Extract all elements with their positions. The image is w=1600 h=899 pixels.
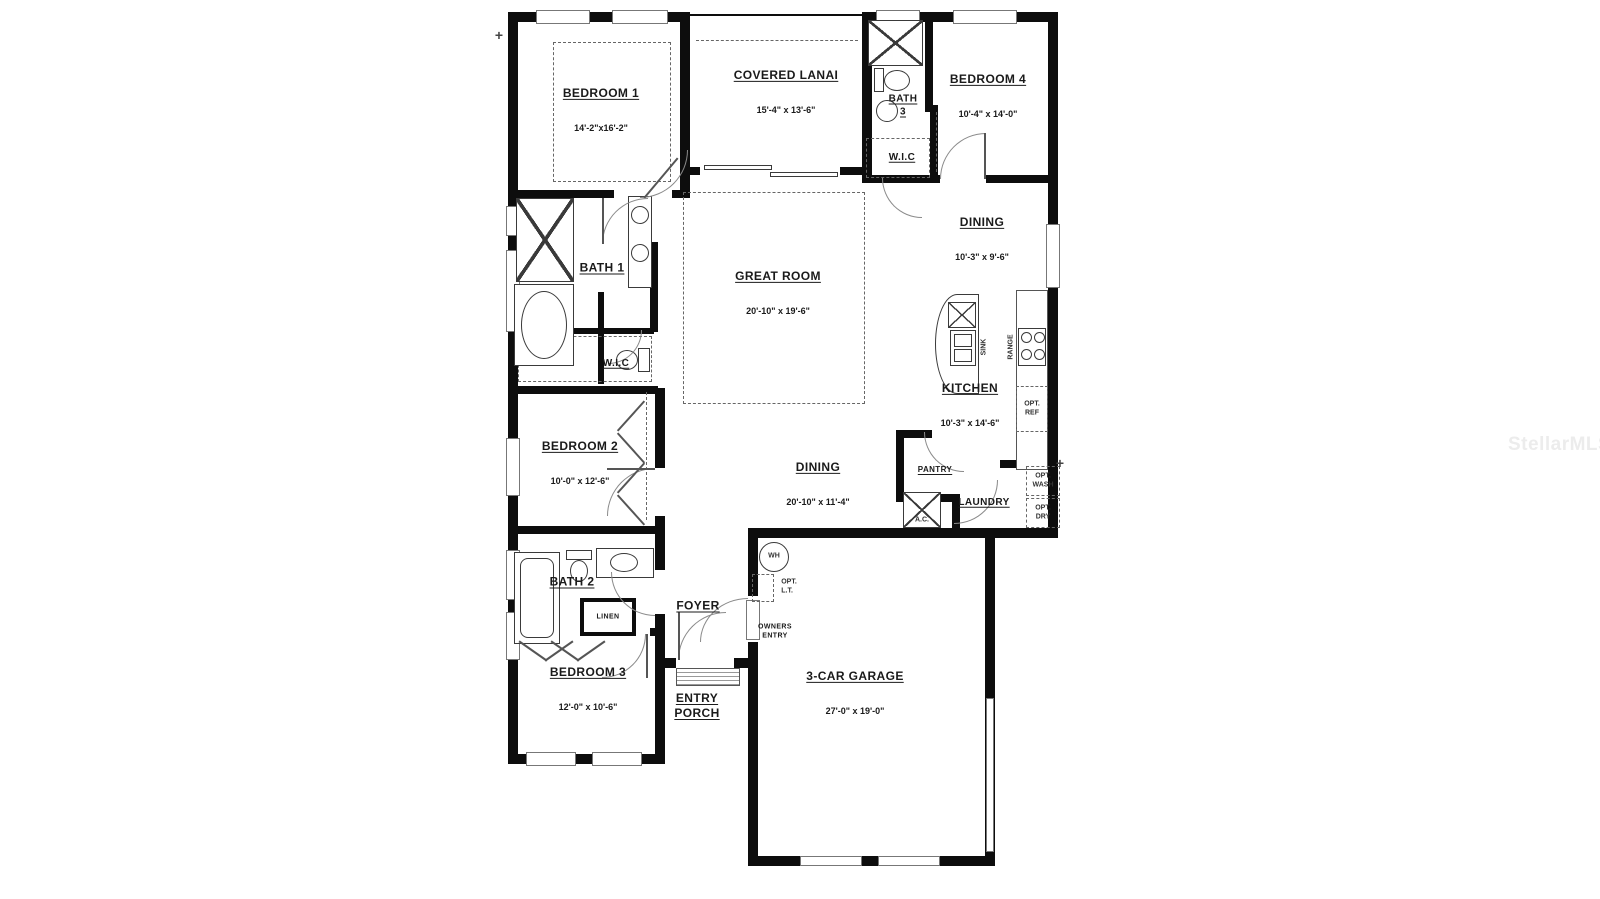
kitchen-counter-right: [1016, 290, 1048, 470]
wall-bath3-right: [925, 12, 933, 112]
window-bedroom4-top: [953, 10, 1017, 24]
slider-panel-1: [704, 165, 772, 170]
opt-laundry-tub-box: [752, 574, 774, 602]
linen-name: LINEN: [597, 614, 620, 623]
sink-label: SINK: [981, 339, 990, 356]
room-label-entry-porch: ENTRY PORCH: [674, 671, 719, 741]
garage-door-opening-1: [800, 856, 862, 866]
range-label: RANGE: [1008, 334, 1017, 359]
window-bedroom1-top-2: [612, 10, 668, 24]
dining-upper-name: DINING: [955, 215, 1009, 230]
bedroom1-name: BEDROOM 1: [563, 86, 639, 101]
kitchen-dims: 10'-3" x 14'-6": [941, 418, 1000, 429]
covered-lanai-name: COVERED LANAI: [734, 68, 839, 83]
bedroom2-bifold-2: [617, 432, 645, 463]
dining-center-dims: 20'-10" x 11'-4": [786, 497, 849, 508]
pantry-name: PANTRY: [918, 465, 952, 475]
bedroom2-bifold-1: [617, 400, 645, 431]
opt-dry-label: OPT. DRY: [1035, 504, 1051, 522]
wall-bedroom2-top: [508, 386, 658, 394]
opening-bedroom2-door: [655, 468, 665, 516]
garage-dims: 27'-0" x 19'-0": [806, 706, 903, 717]
bedroom4-closet-line: [936, 112, 937, 172]
laundry-name: LAUNDRY: [958, 497, 1009, 510]
window-bedroom3-bottom-1: [526, 752, 576, 766]
cross-mark-left: +: [495, 27, 503, 43]
opening-bath2-door: [655, 570, 665, 614]
wall-bedroom2-bottom: [508, 526, 658, 534]
cross-mark-right: +: [1056, 455, 1064, 471]
bath1-sink-2: [631, 244, 649, 262]
bath3-toilet-tank: [874, 68, 884, 92]
bath3-shower: [868, 20, 923, 66]
room-label-bedroom1: BEDROOM 1 14'-2"x16'-2": [563, 66, 639, 154]
room-label-pantry: PANTRY: [918, 445, 952, 495]
owners-entry-name: OWNERS ENTRY: [758, 623, 792, 641]
wall-lanai-top-edge: [688, 14, 864, 16]
door-leaf-bath1: [602, 198, 604, 244]
room-label-kitchen: KITCHEN 10'-3" x 14'-6": [941, 361, 1000, 449]
dining-center-name: DINING: [786, 460, 849, 475]
room-label-covered-lanai: COVERED LANAI 15'-4" x 13'-6": [734, 48, 839, 136]
bath1-tub-basin: [521, 291, 567, 359]
bath1-toilet-tank: [638, 348, 650, 372]
room-label-laundry: LAUNDRY: [958, 477, 1009, 530]
room-label-wic-left: W.I.C: [603, 338, 629, 391]
water-heater-label: WH: [768, 553, 780, 562]
bedroom4-dims: 10'-4" x 14'-0": [950, 109, 1026, 120]
bedroom2-dims: 10'-0" x 12'-6": [542, 476, 618, 487]
stellar-mls-watermark: StellarMLS: [1508, 434, 1600, 456]
bath2-sink: [610, 553, 638, 572]
window-bedroom3-bottom-2: [592, 752, 642, 766]
room-label-wic-upper: W.I.C: [889, 132, 915, 185]
room-label-garage: 3-CAR GARAGE 27'-0" x 19'-0": [806, 649, 903, 737]
bath2-name: BATH 2: [550, 575, 595, 590]
door-arc-bath1: [602, 198, 648, 244]
room-label-foyer: FOYER: [676, 579, 719, 634]
foyer-name: FOYER: [676, 599, 719, 614]
room-label-dining-center: DINING 20'-10" x 11'-4": [786, 440, 849, 528]
garage-name: 3-CAR GARAGE: [806, 669, 903, 684]
range-burner-3: [1021, 349, 1032, 360]
wic-upper-name: W.I.C: [889, 152, 915, 165]
bath3-name: BATH 3: [889, 94, 918, 119]
great-room-dims: 20'-10" x 19'-6": [735, 306, 821, 317]
range-burner-1: [1021, 332, 1032, 343]
window-dining-right: [1046, 224, 1060, 288]
door-leaf-bedroom3: [646, 634, 648, 678]
room-label-bath3: BATH 3: [889, 74, 918, 139]
kitchen-name: KITCHEN: [941, 381, 1000, 396]
bedroom4-name: BEDROOM 4: [950, 72, 1026, 87]
room-label-dining-upper: DINING 10'-3" x 9'-6": [955, 195, 1009, 283]
range-burner-4: [1034, 349, 1045, 360]
bedroom3-name: BEDROOM 3: [550, 665, 626, 680]
bath1-name: BATH 1: [580, 261, 625, 276]
opt-wash-label: OPT. WASH: [1033, 472, 1054, 490]
bedroom1-dims: 14'-2"x16'-2": [563, 123, 639, 134]
slider-panel-2: [770, 172, 838, 177]
floor-plan-canvas: BEDROOM 1 14'-2"x16'-2" COVERED LANAI 15…: [0, 0, 1600, 899]
wall-garage-top-laundry-bottom: [748, 528, 1058, 538]
bath1-shower: [516, 198, 574, 282]
kitchen-sink-basin-1: [954, 334, 972, 347]
window-garage-right: [986, 698, 994, 852]
room-label-owners-entry: OWNERS ENTRY: [758, 603, 792, 661]
covered-lanai-dims: 15'-4" x 13'-6": [734, 105, 839, 116]
room-label-bath1: BATH 1: [580, 241, 625, 296]
entry-porch-name: ENTRY PORCH: [674, 691, 719, 721]
range-burner-2: [1034, 332, 1045, 343]
room-label-bath2: BATH 2: [550, 555, 595, 610]
room-label-bedroom4: BEDROOM 4 10'-4" x 14'-0": [950, 52, 1026, 140]
dining-upper-dims: 10'-3" x 9'-6": [955, 252, 1009, 263]
room-label-bedroom2: BEDROOM 2 10'-0" x 12'-6": [542, 419, 618, 507]
wall-garage-bottom: [748, 856, 995, 866]
opt-ref-label: OPT. REF: [1024, 400, 1040, 418]
opt-laundry-tub-label: OPT. L.T.: [781, 578, 797, 596]
lanai-open-edge: [696, 40, 858, 41]
window-bedroom1-top-1: [536, 10, 590, 24]
garage-door-opening-2: [878, 856, 940, 866]
great-room-name: GREAT ROOM: [735, 269, 821, 284]
room-label-bedroom3: BEDROOM 3 12'-0" x 10'-6": [550, 645, 626, 733]
room-label-great-room: GREAT ROOM 20'-10" x 19'-6": [735, 249, 821, 337]
room-label-linen: LINEN: [597, 594, 620, 643]
wic-left-name: W.I.C: [603, 358, 629, 371]
bedroom2-name: BEDROOM 2: [542, 439, 618, 454]
window-bedroom2-left: [506, 438, 520, 496]
bedroom3-dims: 12'-0" x 10'-6": [550, 702, 626, 713]
ac-unit-label: A.C.: [915, 517, 929, 526]
kitchen-island-prep: [948, 302, 976, 328]
